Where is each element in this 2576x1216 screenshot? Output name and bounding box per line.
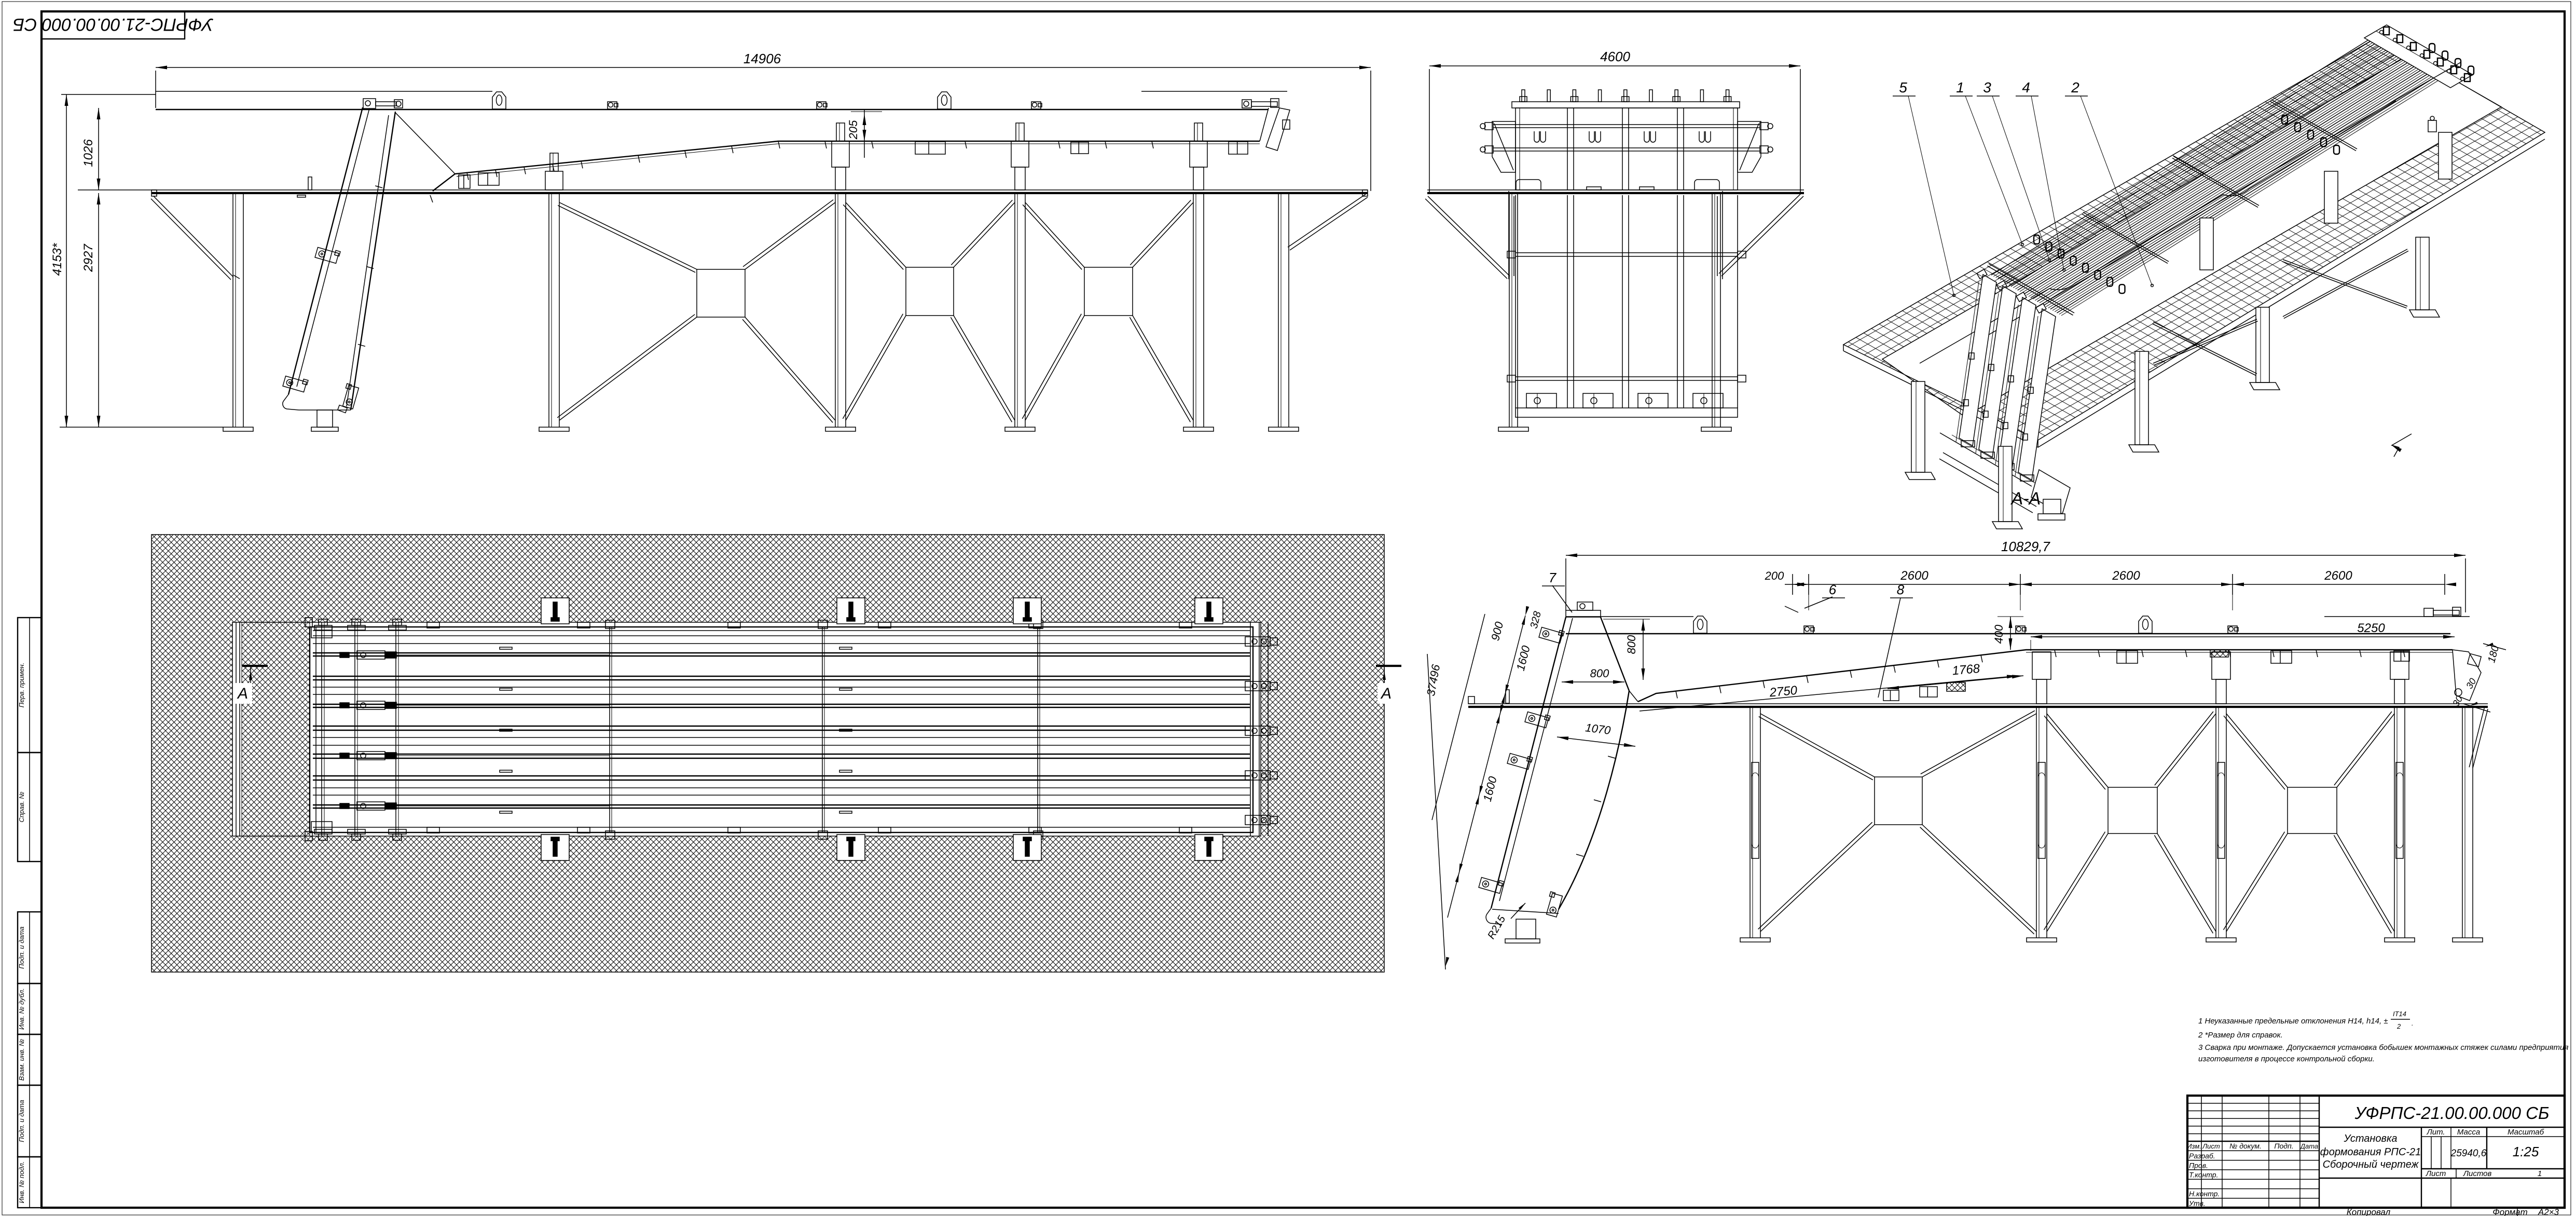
svg-text:1: 1 [2538,1169,2542,1178]
svg-text:5250: 5250 [2357,621,2385,635]
svg-text:формования РПС-21: формования РПС-21 [2320,1146,2421,1158]
svg-text:Сборочный чертеж: Сборочный чертеж [2323,1159,2419,1170]
svg-text:3 Сварка при монтаже. Допуска: 3 Сварка при монтаже. Допускается устано… [2198,1043,2568,1052]
svg-text:IT14: IT14 [2393,1010,2406,1018]
svg-text:1: 1 [1956,79,1964,95]
svg-text:Инв. № дубл.: Инв. № дубл. [18,988,25,1030]
svg-text:Дата: Дата [2299,1142,2318,1150]
svg-text:25940,6: 25940,6 [2450,1148,2487,1159]
svg-text:14906: 14906 [743,51,781,66]
svg-text:Подп. и дата: Подп. и дата [18,1100,25,1142]
svg-text:205: 205 [847,120,860,140]
svg-text:4600: 4600 [1600,49,1630,64]
svg-text:Утв.: Утв. [2188,1199,2206,1208]
svg-text:1768: 1768 [1952,662,1981,678]
svg-text:Масса: Масса [2457,1128,2480,1137]
svg-text:Взам. инв. №: Взам. инв. № [18,1039,25,1081]
svg-text:Подп.: Подп. [2274,1142,2293,1150]
svg-text:изготовителя в процессе контро: изготовителя в процессе контрольной сбор… [2198,1055,2375,1063]
svg-text:800: 800 [1590,667,1609,680]
svg-text:Установка: Установка [2343,1133,2397,1144]
svg-text:1:25: 1:25 [2513,1144,2539,1159]
svg-text:УФРПС-21.00.00.000 СБ: УФРПС-21.00.00.000 СБ [2354,1103,2550,1123]
svg-text:.: . [2412,1019,2414,1027]
svg-text:2750: 2750 [1769,684,1798,700]
svg-text:6: 6 [1829,582,1837,597]
svg-text:Лист: Лист [2426,1169,2446,1178]
svg-text:4: 4 [2022,79,2030,95]
svg-text:A: A [1380,685,1392,702]
svg-text:800: 800 [1625,635,1638,654]
svg-text:Пров.: Пров. [2189,1161,2208,1169]
svg-text:Формат: Формат [2492,1207,2528,1216]
svg-text:А-А: А-А [2010,489,2041,509]
svg-text:2600: 2600 [2324,569,2352,583]
svg-text:Листов: Листов [2463,1169,2492,1178]
svg-text:5: 5 [1899,79,1907,95]
svg-text:Перв. примен.: Перв. примен. [18,663,25,707]
svg-text:УФРПС-21.00.00.000 СБ: УФРПС-21.00.00.000 СБ [13,15,214,34]
svg-text:1026: 1026 [81,139,95,167]
svg-text:A2×3: A2×3 [2538,1207,2559,1216]
svg-text:2: 2 [2396,1022,2401,1030]
svg-text:2: 2 [2071,79,2079,95]
svg-text:200: 200 [1765,569,1784,582]
svg-text:Копировал: Копировал [2347,1207,2391,1216]
svg-text:2 *Размер для справок.: 2 *Размер для справок. [2198,1031,2283,1040]
svg-text:A: A [237,685,248,702]
svg-text:7: 7 [1549,570,1557,585]
svg-text:Разраб.: Разраб. [2189,1152,2215,1160]
svg-text:2927: 2927 [81,243,95,272]
svg-text:Подп. и дата: Подп. и дата [18,926,25,968]
svg-text:2600: 2600 [1900,569,1928,583]
svg-text:8: 8 [1897,582,1905,597]
svg-text:Изм.: Изм. [2187,1142,2201,1150]
svg-text:3: 3 [1983,79,1991,95]
svg-text:Лит.: Лит. [2426,1128,2445,1137]
svg-text:400: 400 [1992,624,2005,644]
svg-text:Справ. №: Справ. № [18,791,25,822]
svg-text:Н.контр.: Н.контр. [2189,1190,2220,1198]
svg-text:1 Неуказанные предельные откл: 1 Неуказанные предельные отклонения Н14,… [2198,1017,2388,1026]
svg-text:Масштаб: Масштаб [2508,1128,2544,1137]
svg-text:10829,7: 10829,7 [2001,539,2051,554]
svg-text:4153*: 4153* [50,243,64,276]
svg-text:Лист: Лист [2202,1142,2220,1150]
svg-text:2600: 2600 [2112,569,2140,583]
svg-text:№ докум.: № докум. [2229,1142,2262,1150]
svg-text:Инв. № подл.: Инв. № подл. [18,1162,25,1204]
svg-text:Т.контр.: Т.контр. [2189,1171,2218,1179]
